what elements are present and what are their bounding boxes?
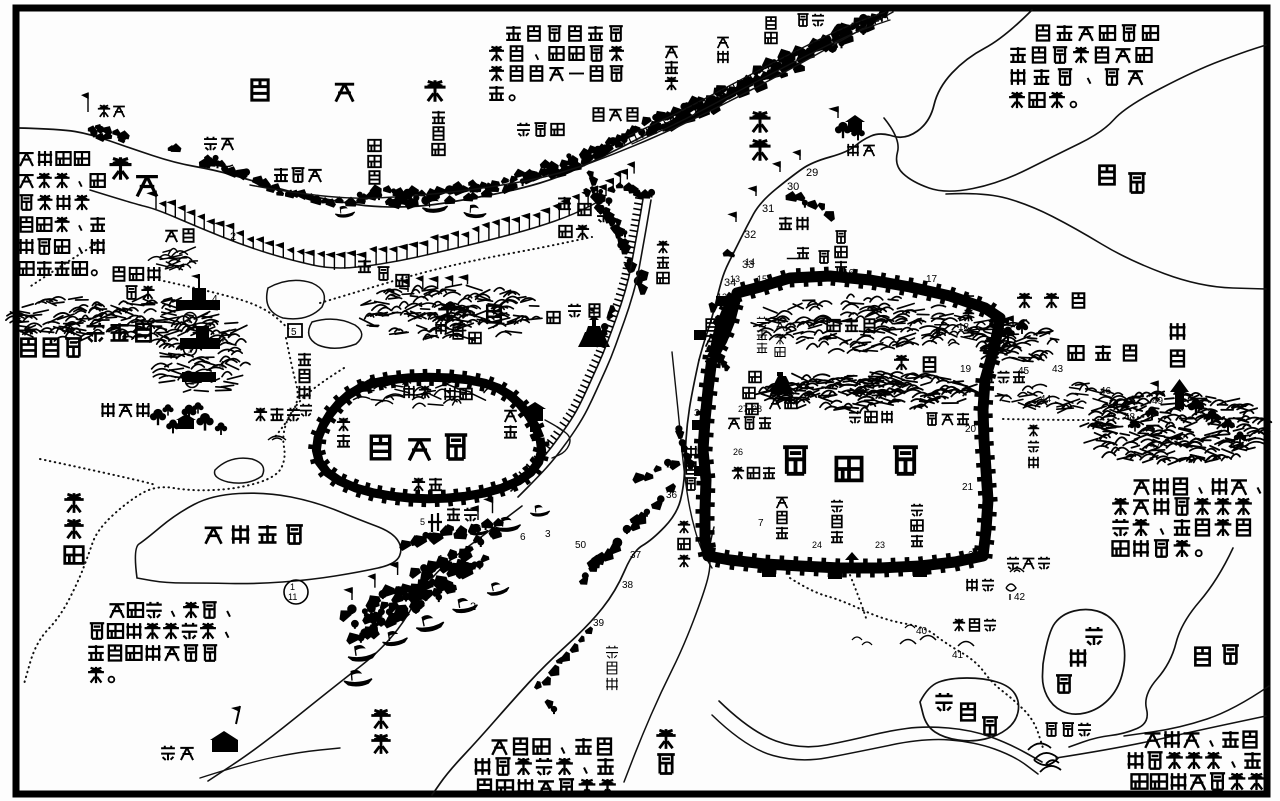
svg-text:37: 37 <box>630 550 642 561</box>
svg-text:1: 1 <box>187 315 192 325</box>
svg-text:13: 13 <box>730 274 740 284</box>
svg-text:31: 31 <box>762 203 774 215</box>
svg-text:48: 48 <box>1124 412 1136 423</box>
svg-text:21: 21 <box>962 482 974 493</box>
svg-text:16: 16 <box>843 268 855 279</box>
svg-text:41: 41 <box>952 650 964 661</box>
svg-text:7: 7 <box>758 518 764 529</box>
svg-text:1: 1 <box>438 554 444 565</box>
svg-text:24: 24 <box>812 540 822 550</box>
svg-text:36: 36 <box>666 490 678 501</box>
svg-text:1: 1 <box>290 582 295 592</box>
svg-text:1: 1 <box>187 345 192 355</box>
svg-text:32: 32 <box>744 229 756 241</box>
svg-text:2: 2 <box>470 601 476 613</box>
svg-text:49: 49 <box>1152 396 1164 407</box>
svg-text:15: 15 <box>757 274 767 284</box>
svg-text:43: 43 <box>1052 364 1064 375</box>
svg-text:2: 2 <box>230 231 236 243</box>
svg-text:4: 4 <box>219 334 225 345</box>
svg-text:11: 11 <box>288 592 297 602</box>
svg-text:39: 39 <box>593 618 605 629</box>
svg-text:5: 5 <box>420 517 425 527</box>
svg-text:30: 30 <box>787 181 799 193</box>
svg-text:50: 50 <box>575 540 587 551</box>
svg-text:12: 12 <box>717 292 727 302</box>
svg-text:20: 20 <box>965 424 977 435</box>
svg-text:26: 26 <box>733 447 743 457</box>
svg-text:44: 44 <box>1040 394 1052 405</box>
svg-text:46: 46 <box>1100 386 1112 397</box>
svg-text:14: 14 <box>745 257 755 267</box>
svg-text:22: 22 <box>968 550 980 561</box>
svg-text:23: 23 <box>875 540 885 550</box>
svg-text:28: 28 <box>752 404 762 414</box>
svg-text:5: 5 <box>291 327 297 338</box>
svg-text:42: 42 <box>1014 592 1026 603</box>
svg-text:27: 27 <box>738 404 748 414</box>
svg-text:38: 38 <box>622 580 634 591</box>
svg-text:45: 45 <box>1018 366 1030 377</box>
svg-text:1: 1 <box>189 377 194 387</box>
svg-text:3: 3 <box>545 529 551 540</box>
svg-text:29: 29 <box>806 167 818 179</box>
svg-text:19: 19 <box>960 364 972 375</box>
svg-text:40: 40 <box>916 626 928 637</box>
svg-text:17: 17 <box>926 274 938 285</box>
svg-text:6: 6 <box>520 532 526 543</box>
svg-text:4: 4 <box>219 360 225 371</box>
svg-text:47: 47 <box>1150 440 1162 451</box>
svg-text:4: 4 <box>212 294 218 305</box>
